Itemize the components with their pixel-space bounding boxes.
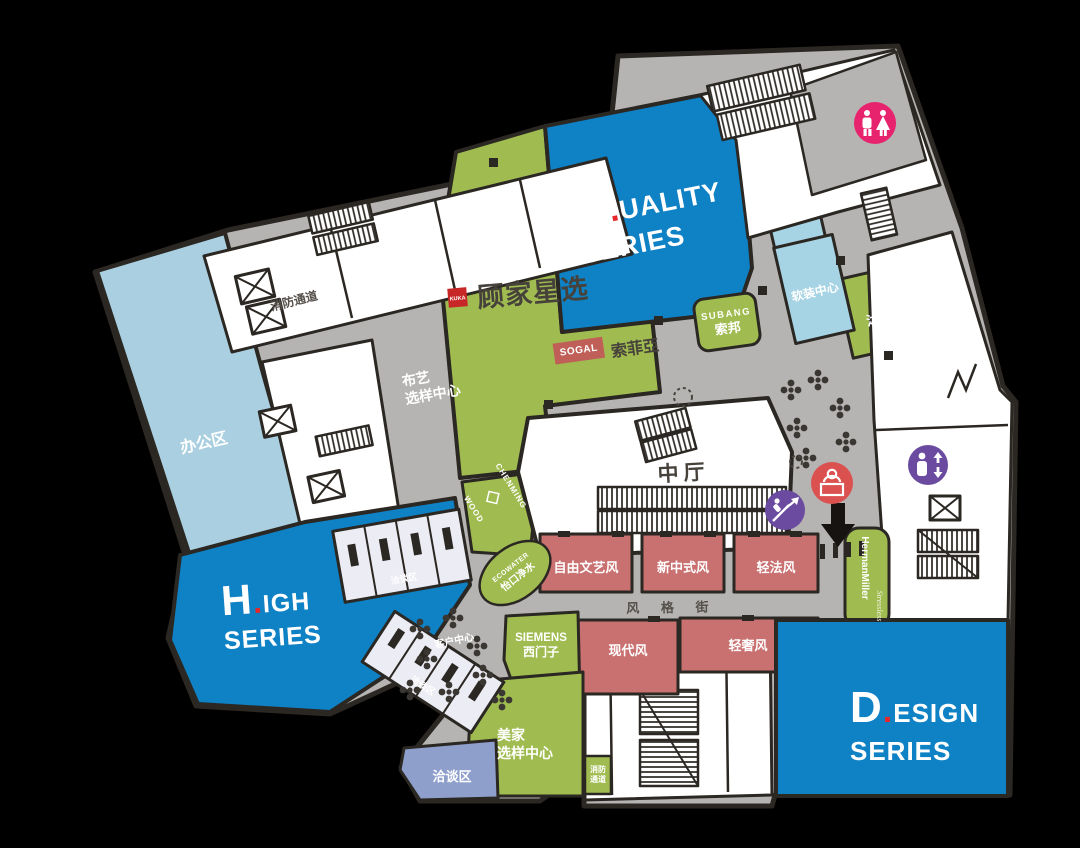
fire-bottom-label-2: 通道 <box>590 774 606 784</box>
service-desk-icon <box>811 462 853 504</box>
style-street-label: 风 格 街 <box>626 599 717 616</box>
atrium-escalator-lower <box>598 487 786 533</box>
escalator-icon <box>765 490 805 530</box>
lounge-label: 洽谈区 <box>432 769 471 784</box>
siemens-logo-label: SIEMENS <box>515 632 567 644</box>
fire-bottom-label-1: 消防 <box>590 764 606 774</box>
zone-label-light-french: 轻法风 <box>756 560 795 575</box>
siemens-name-label: 西门子 <box>523 644 559 659</box>
zone-label-free-art: 自由文艺风 <box>553 560 618 575</box>
mall-floorplan-map: 洽谈区 洽谈区 ECOWATER 怡口净水 KUKA SOGAL <box>0 0 1080 848</box>
meijia-label-2: 选样中心 <box>497 745 553 761</box>
subang-name-label: 索邦 <box>714 319 742 337</box>
stressless-label: Stressless <box>875 591 884 622</box>
meijia-label-1: 美家 <box>497 727 526 743</box>
floorplan-stage: 洽谈区 洽谈区 ECOWATER 怡口净水 KUKA SOGAL <box>0 0 1080 848</box>
atrium-label: 中厅 <box>657 461 710 487</box>
svg-text:SERIES: SERIES <box>850 736 951 766</box>
zone-label-modern: 现代风 <box>608 643 647 658</box>
elevator-icon <box>908 445 948 485</box>
restroom-icon <box>854 102 896 144</box>
herman-miller-label: HermanMiller <box>859 536 870 599</box>
zone-label-new-chinese: 新中式风 <box>657 560 709 575</box>
zone-label-light-luxury: 轻奢风 <box>728 638 767 653</box>
